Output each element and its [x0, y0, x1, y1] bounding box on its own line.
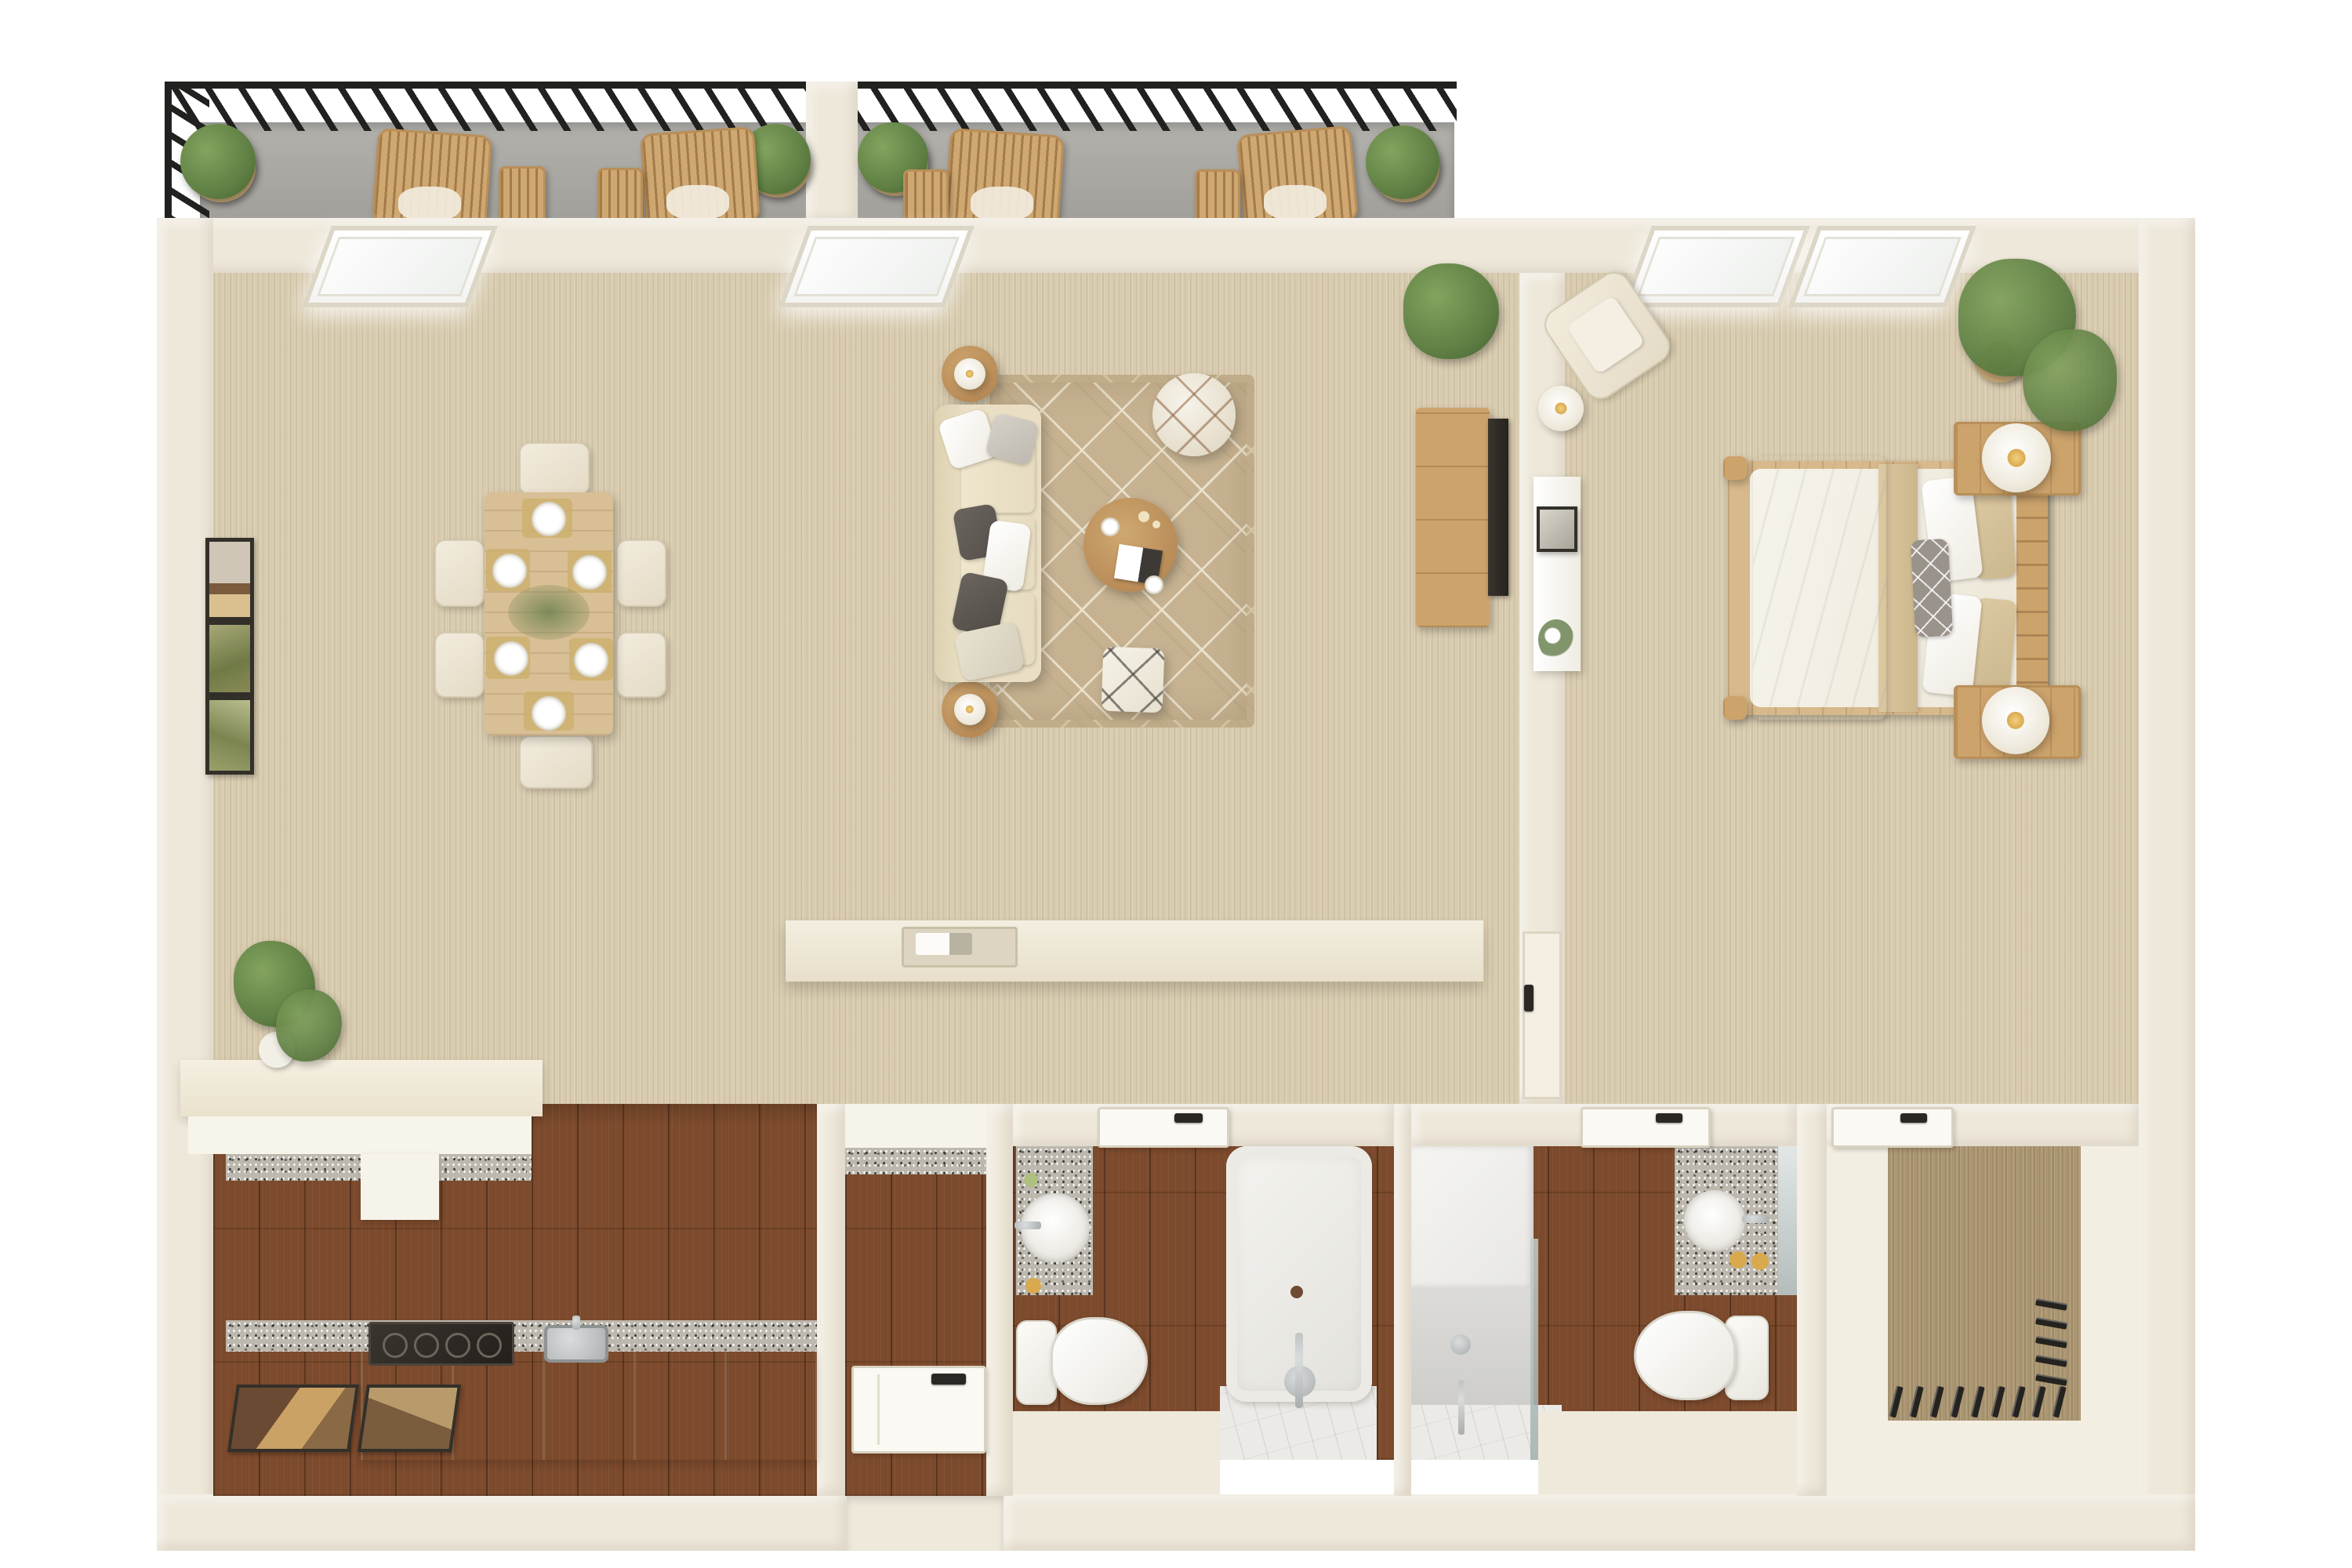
balcony-divider-wall: [806, 82, 858, 223]
toiletry-icon: [1730, 1251, 1747, 1269]
clothes-hanger-icon: [1991, 1386, 2005, 1418]
bed-post: [1723, 696, 1747, 720]
bath1-faucet-icon: [1014, 1221, 1041, 1229]
window-pane: [1637, 237, 1795, 296]
lamp-bulb-icon: [966, 370, 974, 378]
kitchen-peninsula-top: [180, 1060, 543, 1116]
table-lamp: [954, 694, 985, 725]
plate: [492, 554, 527, 588]
lamp-bulb-icon: [966, 706, 974, 713]
shower-upper: [1411, 1146, 1534, 1287]
lounge-cushion: [398, 187, 461, 221]
breakfast-bar: [786, 920, 1483, 982]
lamp-bulb-icon: [2008, 449, 2026, 467]
lamp-bulb-icon: [1555, 402, 1566, 414]
toiletry-icon: [1751, 1253, 1769, 1270]
shower-lower: [1411, 1287, 1534, 1405]
entry-threshold: [847, 1494, 1004, 1551]
floorplan-canvas: [0, 0, 2352, 1568]
bath2-floor-south: [1538, 1411, 1797, 1494]
plate: [532, 696, 566, 731]
bath-divider-wall: [1394, 1104, 1411, 1496]
window: [1788, 226, 1976, 307]
tub-faucet-pipe: [1295, 1333, 1303, 1408]
sink-faucet-icon: [572, 1316, 580, 1330]
hall-door: [1523, 931, 1562, 1099]
plate: [532, 502, 566, 536]
console-art: [1537, 506, 1577, 552]
lounge-cushion: [1264, 185, 1327, 220]
side-table: [597, 168, 643, 223]
kitchen-counter-granite: [226, 1320, 817, 1352]
wall-art: [205, 696, 254, 775]
bath2-right-wall: [1797, 1104, 1827, 1496]
console-flowers: [1538, 619, 1574, 660]
kitchen-sink: [544, 1325, 608, 1363]
clothes-hanger-icon: [2011, 1386, 2025, 1418]
window-pane: [317, 237, 483, 296]
hallway-counter-granite: [845, 1148, 986, 1174]
dining-chair: [616, 632, 666, 698]
closet-door-handle: [1900, 1113, 1927, 1123]
lamp-bulb-icon: [2007, 712, 2024, 729]
burner-icon: [477, 1333, 502, 1358]
clothes-hanger-icon: [1929, 1386, 1944, 1418]
bath1-door: [1098, 1107, 1229, 1148]
bath2-faucet-icon: [1742, 1215, 1769, 1223]
side-table: [499, 166, 546, 223]
door-seam: [877, 1374, 880, 1444]
window-pane: [793, 237, 960, 296]
bed-headboard: [2013, 469, 2048, 707]
coffee-cup: [1145, 575, 1163, 594]
round-pouf: [1152, 373, 1236, 456]
hall-door-handle: [1524, 985, 1534, 1011]
clothes-hanger-icon: [1909, 1386, 1923, 1418]
kitchen-peninsula-front: [188, 1116, 532, 1154]
shower-head-icon: [1450, 1334, 1471, 1355]
shower-glass: [1530, 1239, 1538, 1460]
tub-drain-icon: [1290, 1286, 1303, 1298]
burner-icon: [414, 1333, 439, 1358]
hallway-counter-front: [845, 1104, 986, 1148]
bed-accent-pillow: [1911, 539, 1953, 637]
side-table: [903, 169, 949, 224]
tv-console: [1416, 408, 1490, 627]
bedroom-plant-icon: [2023, 329, 2117, 431]
bath1-toilet: [1051, 1317, 1148, 1405]
kitchen-floor-mat: [227, 1385, 359, 1452]
front-door: [851, 1366, 986, 1454]
closet-door: [1831, 1107, 1954, 1148]
table-centerpiece: [508, 585, 590, 640]
lounge-cushion: [971, 187, 1033, 221]
stove-cooktop: [368, 1322, 514, 1366]
plate: [572, 555, 607, 590]
closet-hanging-clothes: [2043, 1292, 2084, 1402]
balcony-plant-icon: [1366, 125, 1439, 199]
pouf-pattern: [1152, 373, 1236, 456]
dining-chair: [519, 735, 593, 789]
dining-chair: [616, 539, 666, 607]
burner-icon: [383, 1333, 408, 1358]
wall-art: [205, 538, 254, 621]
bath2-mirror: [1778, 1146, 1797, 1295]
shower-faucet-icon: [1458, 1380, 1465, 1435]
clothes-hanger-icon: [1950, 1386, 1964, 1418]
clothes-hanger-icon: [1970, 1386, 1984, 1418]
kitchen-peninsula-return: [361, 1154, 439, 1220]
toiletry-icon: [1024, 1173, 1038, 1187]
bath2-door: [1581, 1107, 1711, 1148]
toiletry-icon: [1025, 1278, 1041, 1294]
coffee-cup: [1101, 517, 1120, 536]
window: [302, 226, 498, 307]
floor-lamp: [1538, 386, 1584, 431]
sphere-lamp: [1982, 687, 2049, 754]
bath2-sink: [1684, 1190, 1745, 1251]
tray-items: [916, 933, 972, 955]
wall-bottom-left: [157, 1494, 847, 1551]
balcony-plant-icon: [180, 124, 256, 199]
balcony: [0, 0, 2352, 235]
bath1-floor-south: [1013, 1411, 1220, 1494]
wall-bottom-right: [1004, 1494, 2195, 1551]
bath2-toilet: [1634, 1311, 1736, 1400]
window-pane: [1803, 237, 1962, 296]
candles: [1138, 511, 1149, 522]
bath2-door-handle: [1656, 1113, 1682, 1123]
lounge-cushion: [666, 185, 729, 220]
plate: [494, 641, 528, 676]
front-door-handle: [931, 1374, 966, 1385]
kitchen-floor-mat: [358, 1385, 461, 1452]
south-wall: [986, 1104, 1013, 1496]
table-lamp: [954, 358, 985, 390]
living-plant-icon: [1403, 263, 1499, 359]
bed-sheet: [1753, 456, 1886, 720]
pouf-pattern: [1102, 647, 1165, 713]
wall-left: [157, 218, 213, 1551]
burner-icon: [445, 1333, 470, 1358]
bed-post: [1723, 456, 1747, 480]
window: [1622, 226, 1810, 307]
window: [779, 226, 975, 307]
square-pouf: [1102, 647, 1165, 713]
tv: [1488, 419, 1508, 596]
dining-chair: [519, 442, 590, 495]
wall-art: [205, 621, 254, 696]
sphere-lamp: [1982, 423, 2051, 492]
side-table: [1195, 169, 1240, 224]
dining-chair: [434, 539, 485, 607]
wall-right: [2139, 218, 2195, 1551]
dining-chair: [434, 632, 485, 698]
south-wall: [817, 1104, 845, 1496]
plate: [574, 643, 608, 677]
bath1-door-handle: [1174, 1113, 1203, 1123]
